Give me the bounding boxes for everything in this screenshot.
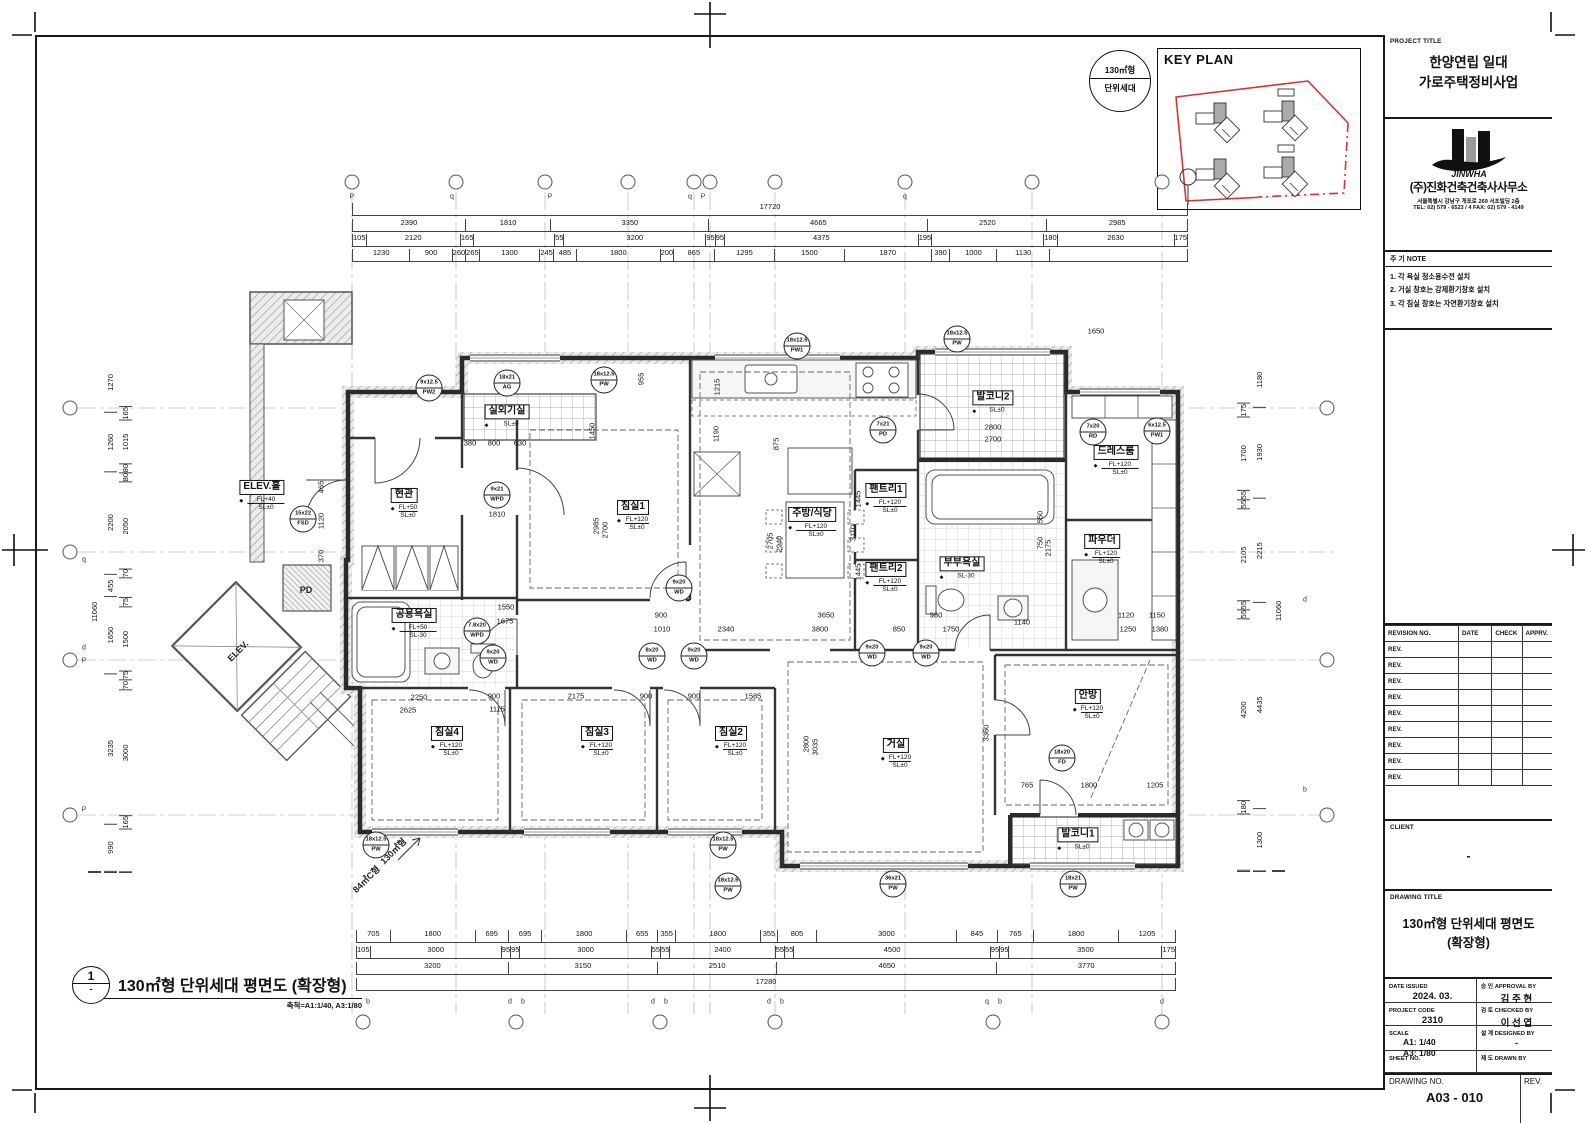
revision-row: REV. [1385,754,1552,770]
note-item: 1. 각 욕실 청소용수전 설치 [1390,270,1547,283]
drawing-title-line2: (확장형) [1385,934,1552,953]
note-item: 3. 각 침실 창호는 자연환기창호 설치 [1390,297,1547,310]
designed-label: 설 계 DESIGNED BY [1481,1031,1535,1037]
drawing-caption: 1 - 130㎡형 단위세대 평면도 (확장형) 축척=A1:1/40, A3:… [72,958,362,1011]
checked-label: 검 토 CHECKED BY [1481,1008,1533,1014]
project-title-line1: 한양연립 일대 [1385,53,1552,73]
project-title-label: PROJECT TITLE [1385,35,1552,45]
note-list: 1. 각 욕실 청소용수전 설치2. 거실 창호는 강제환기창호 설치3. 각 … [1385,267,1552,313]
drawing-no-label: DRAWING NO. [1389,1077,1444,1086]
badge-sub: 단위세대 [1090,79,1150,94]
revision-header-cell: DATE [1458,626,1491,642]
detail-sheet-ref: - [73,984,109,994]
revision-header-cell: CHECK [1492,626,1522,642]
client-label: CLIENT [1385,821,1552,831]
title-block: PROJECT TITLE 한양연립 일대 가로주택정비사업 JINWHA (주… [1383,35,1552,1090]
note-item: 2. 거실 창호는 강제환기창호 설치 [1390,283,1547,296]
caption-title: 130㎡형 단위세대 평면도 (확장형) [118,972,347,996]
firm-name: (주)진화건축건축사사무소 [1385,179,1552,195]
revision-header-cell: REVISION NO. [1385,626,1458,642]
rev-label: REV. [1524,1077,1542,1086]
drawn-label: 제 도 DRAWN BY [1481,1056,1526,1062]
caption-scale: 축척=A1:1/40, A3:1/80 [72,1000,362,1011]
note-label: 주 기 NOTE [1385,252,1552,267]
sheet-no-label: SHEET NO. [1389,1056,1420,1062]
designed-value: - [1481,1038,1552,1049]
detail-number: 1 [73,967,109,984]
svg-text:JINWHA: JINWHA [1451,169,1487,179]
revision-row: REV. [1385,770,1552,786]
revision-header-row: REVISION NO.DATECHECKAPPRV. [1385,626,1552,642]
project-title-line2: 가로주택정비사업 [1385,73,1552,93]
client-value: - [1385,849,1552,863]
firm-logo: JINWHA [1430,127,1508,179]
firm-tel: TEL: 02) 579 - 6523 / 4 FAX: 02) 579 - 4… [1385,205,1552,211]
project-code-value: 2310 [1389,1015,1476,1026]
badge-type: 130㎡형 [1090,51,1150,79]
revision-row: REV. [1385,706,1552,722]
key-plan-panel: KEY PLAN [1157,48,1361,210]
date-issued-label: DATE ISSUED [1389,984,1428,990]
project-code-label: PROJECT CODE [1389,1008,1435,1014]
revision-row: REV. [1385,722,1552,738]
scale-a1: A1: 1/40 [1403,1037,1436,1047]
detail-number-bubble: 1 - [72,966,110,1004]
revision-table: REVISION NO.DATECHECKAPPRV. REV.REV.REV.… [1385,625,1552,821]
firm-address: 서울특별시 강남구 개포로 269 서초빌딩 2층 [1385,197,1552,205]
caption-underline [92,998,362,999]
key-plan-title: KEY PLAN [1158,49,1360,69]
revision-row: REV. [1385,642,1552,658]
drawing-no-value: A03 - 010 [1389,1090,1520,1105]
date-issued-value: 2024. 03. [1389,991,1476,1002]
drawing-sheet: 현관FL+50SL±0실외기실SL±0침실1FL+120SL±0주방/식당FL+… [0,0,1587,1123]
title-block-spacer [1385,330,1552,625]
revision-row: REV. [1385,658,1552,674]
drawing-title-label: DRAWING TITLE [1385,891,1552,901]
approval-label: 승 인 APPROVAL BY [1481,984,1536,990]
drawing-title-line1: 130㎡형 단위세대 평면도 [1385,915,1552,934]
key-plan-map [1158,71,1362,209]
revision-header-cell: APPRV. [1522,626,1552,642]
revision-row: REV. [1385,690,1552,706]
unit-type-badge: 130㎡형 단위세대 [1089,50,1151,112]
revision-row: REV. [1385,674,1552,690]
revision-row: REV. [1385,738,1552,754]
